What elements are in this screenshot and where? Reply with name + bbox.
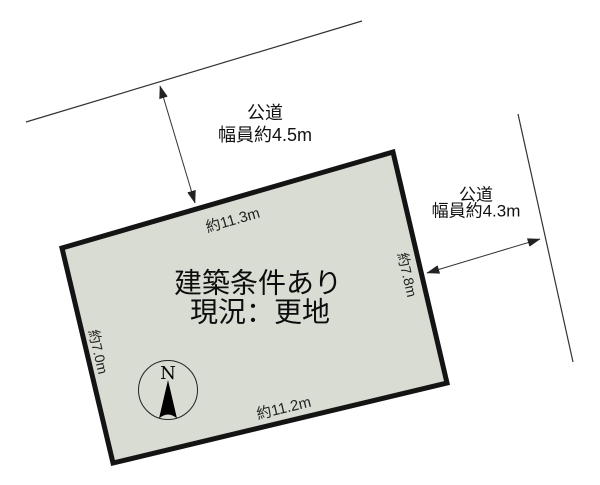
land-plot-diagram-canvas: 公道 幅員約4.5m 公道 幅員約4.3m 約11.3m 約7.8m 約7.0m…	[0, 0, 600, 485]
road-top-width-arrow	[160, 86, 195, 203]
road-top-boundary-line	[26, 21, 362, 122]
road-right-width-label: 幅員約4.3m	[432, 201, 521, 220]
road-right-boundary-line	[518, 114, 573, 362]
road-right-width-arrow	[427, 239, 540, 273]
land-plot-diagram: 公道 幅員約4.5m 公道 幅員約4.3m 約11.3m 約7.8m 約7.0m…	[0, 0, 600, 485]
plot-condition-line2: 現況：更地	[190, 296, 330, 327]
road-top-width-label: 幅員約4.5m	[218, 125, 312, 145]
plot-condition-line1: 建築条件あり	[174, 267, 342, 298]
road-top-name-label: 公道	[247, 103, 283, 123]
